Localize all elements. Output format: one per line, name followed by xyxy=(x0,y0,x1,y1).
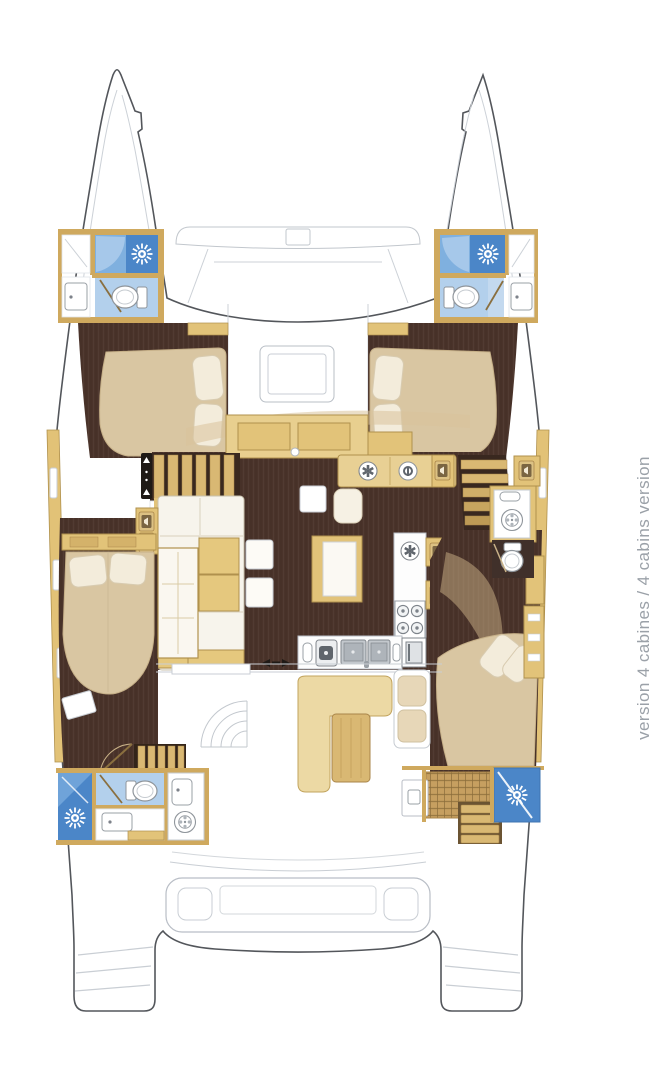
port-forward-bathroom xyxy=(58,229,164,323)
davit-mount xyxy=(384,888,418,920)
headboard-shelf xyxy=(188,323,228,335)
sofa-table xyxy=(199,538,239,574)
nav-seat xyxy=(312,536,362,602)
speaker-locker-icon xyxy=(519,461,534,480)
aft-beam xyxy=(166,878,430,932)
catamaran-floor-plan xyxy=(0,0,671,1080)
stove-icon xyxy=(395,601,425,639)
headboard-shelf xyxy=(368,323,408,335)
toilet-icon xyxy=(126,781,157,801)
anchor-locker-hatch xyxy=(286,229,310,245)
starboard-forward-bathroom xyxy=(434,229,538,323)
canister xyxy=(303,643,312,662)
floor-hatch xyxy=(300,486,326,512)
sink-icon xyxy=(511,283,532,310)
speaker-locker-icon xyxy=(435,461,450,480)
port-aft-bathroom xyxy=(56,768,209,845)
table-leg xyxy=(291,448,299,456)
port-aft-cabin xyxy=(59,508,198,802)
washing-machine-icon xyxy=(502,510,523,531)
sideboard-door xyxy=(298,423,350,450)
side-table xyxy=(246,578,273,607)
port-hull-window xyxy=(50,468,57,498)
stool-cushion xyxy=(334,489,362,523)
chart-locker xyxy=(368,432,412,456)
instrument-dial-icon xyxy=(399,462,417,480)
speaker-locker-icon xyxy=(139,512,154,531)
canister xyxy=(393,644,400,661)
wardrobe xyxy=(158,548,198,658)
pillow xyxy=(372,355,404,402)
version-caption: version 4 cabines / 4 cabins version xyxy=(634,456,654,740)
cockpit-table xyxy=(332,714,370,782)
sink-icon xyxy=(65,283,87,310)
sliding-door xyxy=(172,664,250,674)
sofa-table xyxy=(199,575,239,611)
pillow xyxy=(192,355,224,402)
extractor-fan-icon xyxy=(359,462,377,480)
pillow xyxy=(69,554,108,588)
toilet-icon xyxy=(112,286,147,308)
pillow xyxy=(109,552,147,585)
toilet-icon xyxy=(444,286,479,308)
soap-shelf xyxy=(500,492,520,501)
wardrobe xyxy=(524,606,544,678)
companionway-arrows-icon xyxy=(141,453,152,499)
sink-icon xyxy=(102,813,132,831)
floor-plan-page: version 4 cabines / 4 cabins version xyxy=(0,0,671,1080)
davit-mount xyxy=(178,888,212,920)
side-locker xyxy=(509,235,534,273)
sideboard-door xyxy=(238,423,290,450)
side-table xyxy=(246,540,273,569)
washing-machine-icon xyxy=(175,812,196,833)
sink-icon xyxy=(172,779,192,805)
helm-seat xyxy=(394,670,430,748)
coffee-maker-icon xyxy=(316,640,337,666)
utility-room xyxy=(168,773,204,840)
round-sink-icon xyxy=(401,542,419,560)
fridge-icon xyxy=(402,638,426,667)
